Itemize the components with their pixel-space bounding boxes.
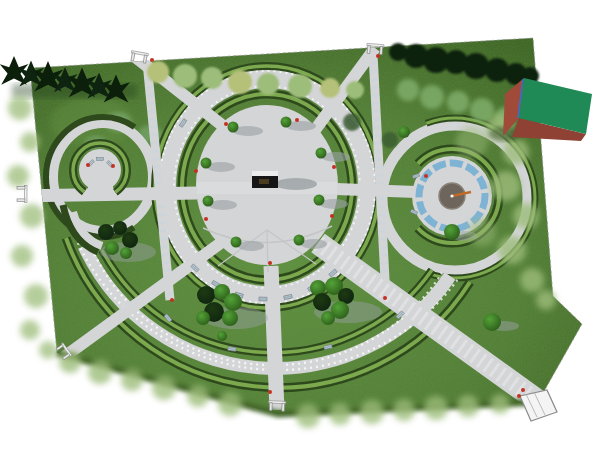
- lone-tree: [483, 313, 501, 331]
- park-plan-svg: [0, 0, 600, 450]
- south-spoke: [271, 266, 277, 410]
- monument-plaque: [259, 179, 269, 184]
- lone-tree: [398, 126, 410, 138]
- bush: [382, 132, 398, 148]
- alcove-paving: [79, 149, 121, 191]
- alcove-bench: [97, 157, 104, 160]
- gate-west: [17, 186, 27, 203]
- bench-alcove: [73, 143, 127, 200]
- monument-top: [252, 171, 278, 176]
- park-render-canvas: [0, 0, 600, 450]
- east-spoke: [336, 189, 416, 192]
- monument-shadow: [275, 178, 317, 190]
- bush: [343, 113, 361, 131]
- lone-tree: [444, 224, 460, 240]
- sundial-pivot: [450, 194, 453, 197]
